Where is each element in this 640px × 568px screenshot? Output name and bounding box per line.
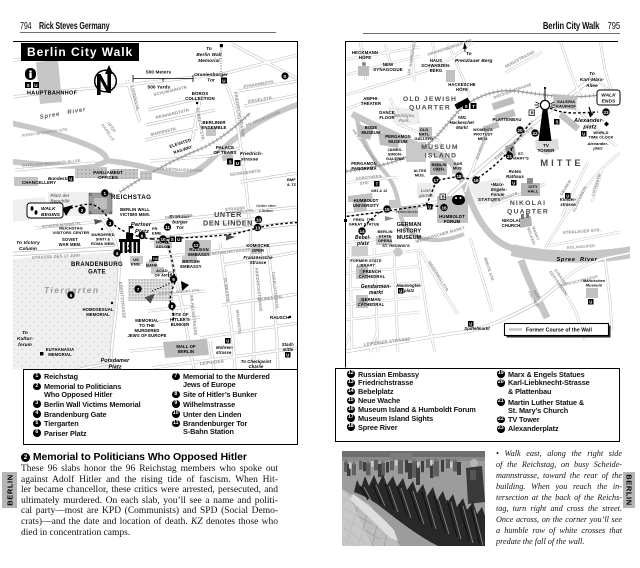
svg-text:MARY’S: MARY’S [513,156,529,161]
svg-text:GREAT STATUE: GREAT STATUE [349,222,380,227]
svg-text:QUARTER: QUARTER [409,105,451,112]
svg-text:FLOOR: FLOOR [379,115,394,120]
svg-text:5: 5 [70,293,73,298]
svg-text:WILHELMSTRASSE: WILHELMSTRASSE [189,295,198,336]
svg-text:strasse: strasse [241,157,258,162]
svg-text:#M1 & 12: #M1 & 12 [371,189,387,193]
svg-text:LIBRARY: LIBRARY [357,263,375,268]
svg-text:STRALAUER STR.: STRALAUER STR. [563,227,601,235]
svg-text:17: 17 [433,178,439,183]
svg-text:GERMAN: GERMAN [397,222,422,228]
svg-text:OPER: OPER [252,248,264,253]
svg-text:U: U [236,161,240,166]
svg-text:OFFICES: OFFICES [98,175,118,180]
svg-text:Spittelmarkt: Spittelmarkt [464,326,490,331]
svg-text:R: R [531,111,534,116]
svg-text:8: 8 [171,304,174,309]
svg-text:MUS.: MUS. [453,166,463,171]
svg-text:WALK: WALK [41,206,56,212]
svg-text:U: U [177,237,180,242]
svg-text:garten: garten [418,193,433,198]
svg-text:11: 11 [165,225,170,230]
svg-text:ROMA MEM.: ROMA MEM. [91,241,115,246]
svg-text:7: 7 [137,287,140,292]
svg-text:DEN LINDEN: DEN LINDEN [203,219,253,228]
svg-text:Alexander-: Alexander- [573,118,604,124]
svg-text:GALERIE: GALERIE [386,156,404,161]
svg-text:platz: platz [356,241,369,247]
svg-text:U: U [589,300,592,305]
svg-text:Platz der: Platz der [50,193,69,198]
svg-text:UNIVERSITY: UNIVERSITY [353,203,379,208]
svg-text:GLINKASTR.: GLINKASTR. [223,278,231,304]
svg-text:MUS.: MUS. [415,173,425,178]
svg-text:12: 12 [193,243,199,248]
svg-text:VICTIMS MEM.: VICTIMS MEM. [120,212,150,217]
svg-text:ISLAND: ISLAND [425,153,458,160]
svg-text:EMB.: EMB. [131,262,141,267]
svg-text:ENSEMBLE: ENSEMBLE [201,125,226,130]
svg-text:Pariser: Pariser [131,222,152,228]
svg-text:HÖFE: HÖFE [456,87,468,92]
svg-text:SYNAGOGUE: SYNAGOGUE [373,67,402,72]
svg-text:TOWER: TOWER [538,148,555,153]
svg-text:Potsdamer: Potsdamer [101,358,131,364]
svg-text:Oranienburger: Oranienburger [194,72,229,77]
svg-text:BRANDENBURG: BRANDENBURG [71,262,123,268]
svg-text:WALK: WALK [601,93,616,99]
svg-text:Former Course of the Wall: Former Course of the Wall [526,328,592,334]
svg-text:STR.: STR. [360,180,370,186]
svg-text:U: U [512,181,515,186]
svg-text:platz: platz [592,146,602,151]
svg-text:& TZ: & TZ [287,182,297,187]
svg-text:PLATTENBAU: PLATTENBAU [492,117,521,122]
svg-text:9: 9 [172,277,175,282]
svg-text:T: T [472,104,475,109]
svg-text:6: 6 [141,233,144,238]
svg-text:OF TEARS: OF TEARS [214,150,237,155]
svg-text:To Victory: To Victory [16,240,40,245]
svg-text:To: To [589,71,595,76]
svg-text:U: U [286,353,289,358]
svg-text:CATHEDRAL: CATHEDRAL [359,274,386,279]
svg-text:15: 15 [384,207,390,212]
svg-text:Allee: Allee [585,83,598,88]
svg-text:Rathaus: Rathaus [506,174,524,179]
svg-text:EMB.: EMB. [152,231,162,236]
svg-text:U: U [399,289,402,294]
svg-text:KAUFHOF: KAUFHOF [556,104,576,109]
svg-text:22: 22 [532,131,538,136]
svg-text:B: B [442,195,445,200]
svg-text:10: 10 [160,237,166,242]
svg-text:BUNKER: BUNKER [171,322,190,327]
svg-text:Park: Park [399,118,409,123]
svg-text:MUSEUM: MUSEUM [361,130,381,135]
svg-text:MUSEUM: MUSEUM [388,139,408,144]
svg-text:HAUPTBAHNHOF: HAUPTBAHNHOF [27,91,78,97]
svg-text:TIME CLOCK: TIME CLOCK [588,135,613,140]
svg-text:WAR MEM.: WAR MEM. [59,242,82,247]
svg-text:strasse: strasse [216,350,232,355]
svg-text:500 Meters: 500 Meters [146,70,172,75]
svg-text:GATE: GATE [88,270,106,276]
svg-text:PANORAMA: PANORAMA [351,166,376,171]
svg-text:FORUM: FORUM [444,219,461,224]
svg-text:Tor: Tor [207,78,216,83]
svg-text:CHURCH: CHURCH [502,223,521,228]
svg-text:S: S [556,120,559,125]
svg-text:U: U [69,177,72,182]
svg-text:MUSEUM: MUSEUM [421,144,458,151]
svg-text:3: 3 [109,221,112,226]
svg-text:CATHEDRAL: CATHEDRAL [358,302,385,307]
svg-text:Prenzlauer Berg: Prenzlauer Berg [455,58,492,63]
svg-text:To: To [466,51,472,56]
svg-text:2: 2 [81,208,84,213]
svg-text:U: U [222,79,226,84]
svg-text:U: U [428,205,431,210]
svg-text:COLLECTION: COLLECTION [185,96,215,101]
svg-text:To: To [206,46,212,51]
svg-text:AM WEIDENDAMM: AM WEIDENDAMM [245,109,282,128]
svg-text:EBERTSTRASSE: EBERTSTRASSE [118,282,127,319]
svg-text:Memorial: Memorial [198,58,220,63]
svg-text:MITTE: MITTE [540,158,584,169]
svg-text:21: 21 [507,154,513,159]
svg-text:10: 10 [256,217,262,222]
svg-text:OLD JEWISH: OLD JEWISH [403,96,457,103]
svg-text:19: 19 [473,178,479,183]
svg-text:Spree River: Spree River [39,107,86,121]
svg-text:REICHSTAG: REICHSTAG [111,194,151,201]
svg-text:forum: forum [18,342,32,347]
svg-text:RAUSCH: RAUSCH [270,315,289,320]
svg-text:Berlin Wall: Berlin Wall [196,52,222,57]
svg-text:Markt: Markt [456,125,468,130]
svg-text:To: To [22,330,28,335]
svg-text:HÖFE: HÖFE [359,55,372,60]
svg-text:mitte: mitte [283,347,294,352]
svg-text:OF ART: OF ART [155,273,170,278]
svg-text:MEMORIAL: MEMORIAL [48,352,72,357]
svg-text:S: S [27,83,30,88]
svg-text:BERLIN: BERLIN [178,349,194,354]
svg-text:T: T [376,182,379,187]
svg-text:CATH.: CATH. [433,167,445,172]
svg-text:U: U [226,339,229,344]
svg-text:1: 1 [104,191,107,196]
svg-text:14: 14 [359,229,365,234]
svg-text:EMBASSY: EMBASSY [188,252,210,257]
svg-text:Museum: Museum [586,283,603,288]
svg-text:U: U [34,83,38,88]
svg-text:Walentinstr.: Walentinstr. [396,210,419,214]
svg-text:Karl-Marx-: Karl-Marx- [580,77,605,82]
svg-text:NIEDERWALLSTR.: NIEDERWALLSTR. [427,260,450,293]
svg-text:JEWS OF EUROPE: JEWS OF EUROPE [127,333,166,338]
svg-text:Kultur-: Kultur- [17,336,33,341]
svg-text:16: 16 [441,205,447,210]
svg-text:MAUERSTR.: MAUERSTR. [235,310,243,335]
svg-text:HALL: HALL [528,189,539,194]
svg-text:VISITORS CENTER: VISITORS CENTER [53,230,90,235]
svg-text:U: U [582,132,585,137]
svg-text:FRIEDRICHSTRASSE: FRIEDRICHSTRASSE [254,268,264,313]
svg-text:MITTELSTR.: MITTELSTR. [230,208,255,215]
svg-text:13: 13 [255,225,261,230]
svg-text:BERG: BERG [430,68,443,73]
svg-text:THEATER: THEATER [361,101,381,106]
svg-text:NIKOLAI: NIKOLAI [510,200,546,207]
svg-text:BREITE STR.: BREITE STR. [483,257,496,283]
svg-text:Friedrich-: Friedrich- [240,151,263,156]
svg-text:MEMORIAL: MEMORIAL [86,312,110,317]
svg-text:20: 20 [517,128,523,133]
svg-text:Tor: Tor [176,225,185,230]
svg-text:BEGINS: BEGINS [41,212,61,218]
svg-text:S: S [465,104,468,109]
svg-text:markt: markt [369,290,383,296]
svg-text:ROLANDUFER: ROLANDUFER [567,243,596,250]
svg-text:23: 23 [603,110,609,115]
svg-text:U: U [566,194,569,199]
svg-text:S: S [229,159,232,164]
svg-text:ADLON: ADLON [156,244,170,249]
svg-text:Spree River: Spree River [556,257,597,263]
svg-text:18: 18 [456,174,462,179]
svg-text:Strasse: Strasse [250,260,267,265]
svg-text:ST. HEDWIG’S: ST. HEDWIG’S [382,243,410,248]
svg-text:HISTORY: HISTORY [397,229,422,235]
svg-text:burger: burger [172,220,189,225]
svg-text:GALLERY: GALLERY [414,136,433,141]
svg-text:BANK: BANK [146,263,158,268]
svg-text:platz: platz [403,288,415,293]
svg-text:4: 4 [116,251,119,256]
svg-text:Linden: Linden [259,208,273,213]
svg-text:CHANCELLERY: CHANCELLERY [22,180,56,185]
svg-text:QUARTER: QUARTER [507,209,549,216]
svg-text:EMBASSY: EMBASSY [180,264,202,269]
svg-text:ENDS: ENDS [602,99,616,105]
svg-text:Column: Column [19,246,37,251]
svg-text:S: S [171,237,174,242]
